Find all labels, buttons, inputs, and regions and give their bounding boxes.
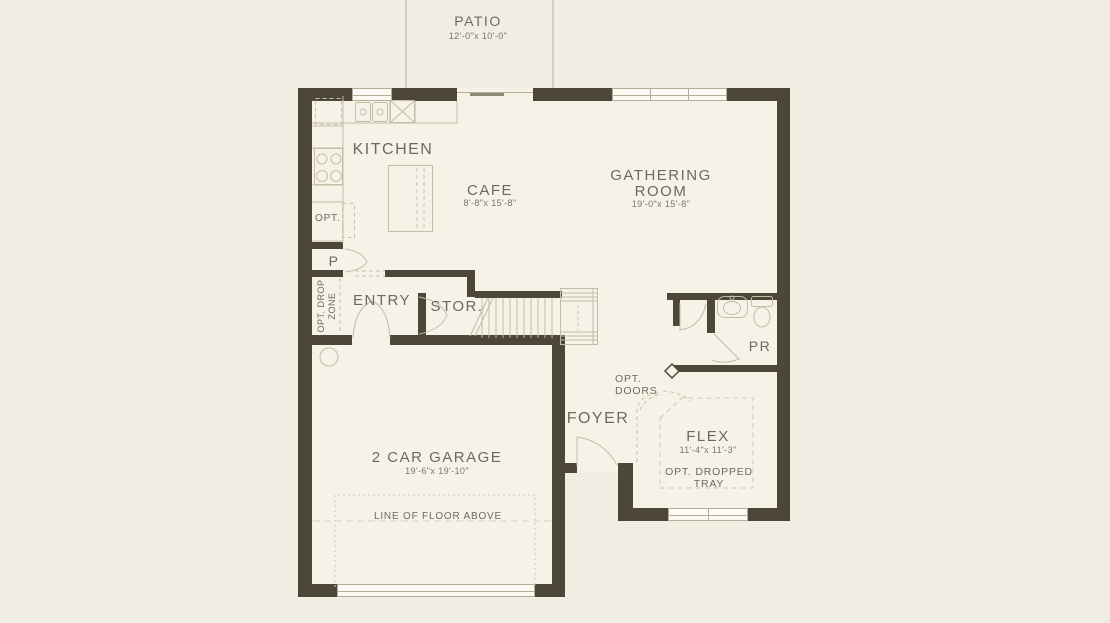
garage-dims: 19'-6"x 19'-10": [357, 466, 517, 476]
flex-label: FLEX: [658, 429, 758, 446]
pr-toilet: [752, 297, 773, 307]
patio-dims: 12'-0"x 10'-0": [398, 31, 558, 41]
line-of-floor-above-box: [335, 495, 535, 587]
powder-door: [712, 334, 739, 362]
entry-label: ENTRY: [342, 293, 422, 310]
linework-layer: [0, 0, 1110, 623]
foyer-label: FOYER: [548, 410, 648, 428]
gathering-room-dims: 19'-0"x 15'-8": [581, 199, 741, 209]
patio-label: PATIO: [398, 14, 558, 29]
powder-room-fixtures: [718, 296, 773, 327]
opt-doors-label-line1: OPT.: [615, 373, 642, 385]
powder-room-label: PR: [740, 339, 780, 354]
opt-appliance-box: [343, 204, 355, 238]
drop-zone-label: OPT. DROP ZONE: [316, 271, 338, 341]
opt-doors-label-line2: DOORS: [615, 385, 658, 397]
dropped-tray-label-line1: OPT. DROPPED: [649, 466, 769, 478]
garage-label: 2 CAR GARAGE: [357, 450, 517, 467]
dropped-tray-label-line2: TRAY: [649, 478, 769, 490]
opt-appliance-label: OPT.: [315, 213, 340, 224]
line-of-floor-above-label: LINE OF FLOOR ABOVE: [358, 511, 518, 522]
pantry-label: P: [324, 254, 344, 269]
pantry-door: [345, 249, 367, 272]
opt-fridge: [316, 99, 342, 125]
front-door: [577, 437, 617, 466]
water-heater: [320, 348, 338, 366]
entry-opening-dash: [355, 271, 385, 276]
flex-dims: 11'-4"x 11'-3": [658, 445, 758, 455]
closet-door: [680, 303, 706, 330]
post-marker: [665, 364, 679, 378]
cafe-dims: 8'-8"x 15'-8": [410, 198, 570, 208]
drop-zone-line1: OPT. DROP: [316, 271, 327, 341]
floor-plan-canvas: PATIO 12'-0"x 10'-0" KITCHEN CAFE 8'-8"x…: [0, 0, 1110, 623]
stairs: [470, 289, 598, 345]
drop-zone-line2: ZONE: [327, 271, 338, 341]
storage-label: STOR.: [417, 299, 497, 316]
kitchen-label: KITCHEN: [313, 141, 473, 159]
